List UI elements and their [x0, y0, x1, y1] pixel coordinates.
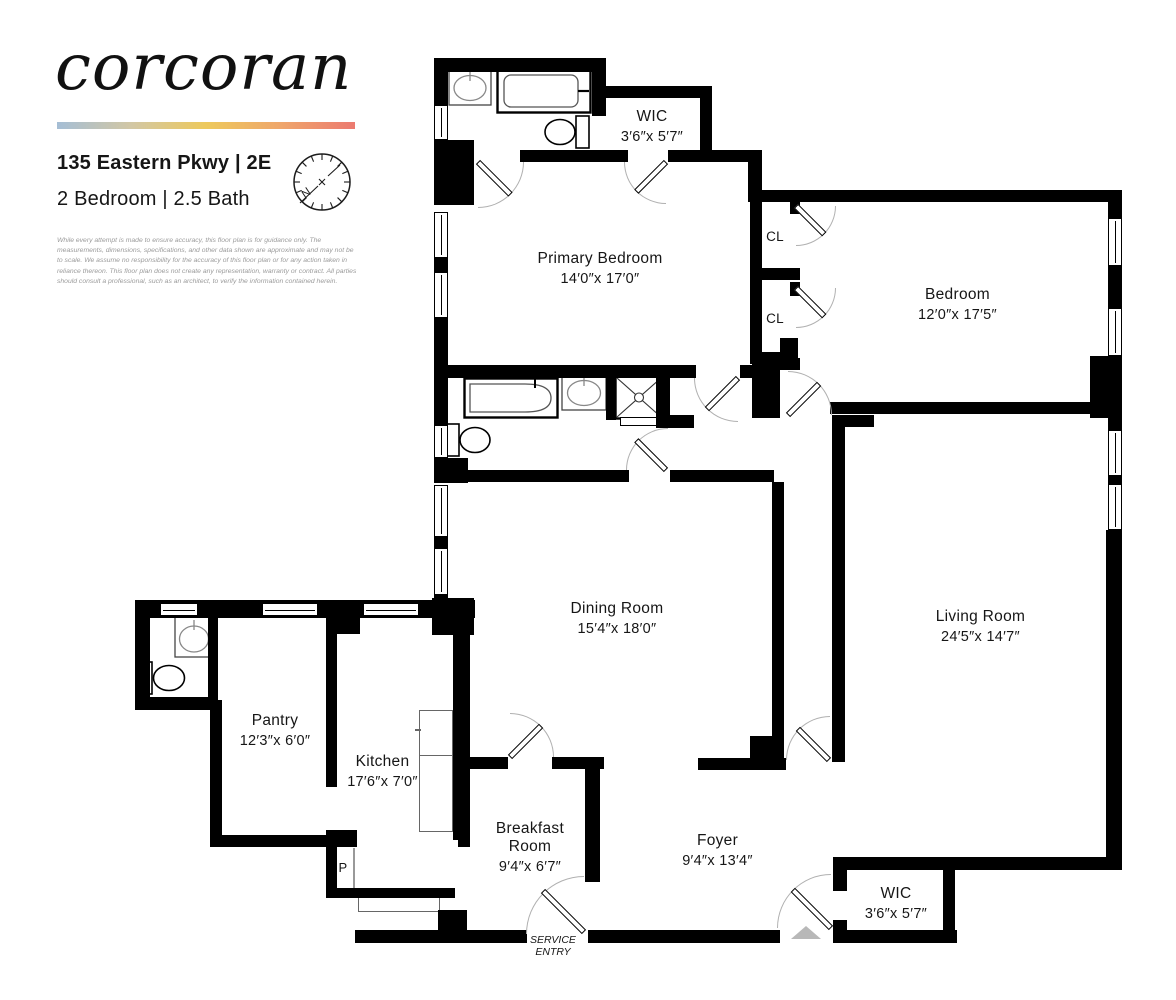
wall: [762, 268, 800, 280]
wall: [830, 402, 1092, 414]
room-label-kitchen: Kitchen17′6″x 7′0″: [300, 753, 465, 790]
window-icon: [1108, 430, 1122, 476]
wall: [520, 150, 600, 162]
wall: [840, 857, 1122, 870]
wall: [210, 835, 340, 847]
corcoran-logo: corcoran: [55, 36, 352, 100]
brand-gradient-bar: [57, 122, 355, 129]
wall: [434, 58, 606, 72]
wall: [772, 482, 784, 768]
window-icon: [434, 485, 448, 537]
wall: [1108, 190, 1122, 218]
wall: [434, 58, 448, 108]
window-icon: [434, 272, 448, 318]
window-icon: [262, 603, 318, 616]
wall: [832, 427, 845, 762]
wall: [1108, 418, 1122, 430]
wall: [445, 470, 629, 482]
sink-icon: [448, 68, 492, 111]
wall: [135, 600, 150, 710]
wall: [434, 537, 448, 548]
room-label-dining-room: Dining Room15′4″x 18′0″: [482, 600, 752, 637]
wall: [750, 162, 762, 354]
bathtub-icon: [496, 68, 592, 119]
wall: [588, 930, 780, 943]
listing-address: 135 Eastern Pkwy | 2E: [57, 152, 271, 175]
room-label-primary-bedroom: Primary Bedroom14′0″x 17′0″: [460, 250, 740, 287]
wall: [135, 697, 218, 710]
wall: [832, 415, 874, 427]
wall: [458, 830, 470, 847]
window-icon: [434, 425, 448, 458]
window-icon: [1108, 218, 1122, 266]
window-icon: [434, 212, 448, 258]
room-label-living-room: Living Room24′5″x 14′7″: [848, 608, 1113, 645]
sink-icon: [561, 373, 607, 416]
wall: [1106, 530, 1122, 870]
wall: [326, 888, 357, 898]
window-icon: [1108, 308, 1122, 356]
wall: [434, 140, 474, 205]
wall: [355, 888, 455, 898]
wall: [664, 415, 694, 428]
window-icon: [434, 548, 448, 595]
wall: [326, 618, 360, 634]
wall: [470, 757, 508, 769]
wall: [598, 150, 628, 162]
wall: [748, 190, 1122, 202]
wall: [845, 930, 957, 943]
room-label-foyer: Foyer9′4″x 13′4″: [640, 832, 795, 869]
disclaimer-text: While every attempt is made to ensure ac…: [57, 236, 361, 287]
wall: [750, 736, 772, 760]
wall: [594, 86, 712, 98]
window-icon: [434, 105, 448, 140]
wall: [434, 318, 448, 425]
window-icon: [160, 603, 198, 616]
wall: [698, 758, 786, 770]
compass-icon: N: [288, 148, 356, 221]
wall: [210, 700, 222, 847]
shower-entry: [620, 417, 658, 426]
toilet-icon: [444, 422, 492, 463]
floorplan-page: corcoran 135 Eastern Pkwy | 2E 2 Bedroom…: [0, 0, 1176, 1000]
wall: [780, 358, 800, 370]
wall: [1108, 476, 1122, 484]
room-label-wic-bottom: WIC3′6″x 5′7″: [844, 885, 948, 922]
wall: [1108, 266, 1122, 308]
breakfast-counter: [358, 896, 440, 912]
toilet-icon: [543, 114, 591, 155]
room-label-breakfast-room: Breakfast Room9′4″x 6′7″: [480, 820, 580, 875]
wall: [355, 930, 527, 943]
wall: [740, 365, 762, 378]
window-icon: [1108, 484, 1122, 530]
listing-unit-info: 2 Bedroom | 2.5 Bath: [57, 188, 250, 211]
bathtub-icon: [463, 377, 559, 424]
wall: [606, 378, 616, 420]
wall: [670, 470, 774, 482]
wall: [752, 352, 780, 418]
wall: [585, 757, 600, 882]
wall: [208, 618, 218, 698]
wall: [434, 258, 448, 272]
wall: [943, 870, 955, 943]
wall: [326, 634, 337, 787]
room-label-bedroom: Bedroom12′0″x 17′5″: [820, 286, 1095, 323]
wall: [453, 600, 470, 840]
wall: [1090, 356, 1122, 418]
window-icon: [363, 603, 419, 616]
room-label-wic-top: WIC3′6″x 5′7″: [596, 108, 708, 145]
wall: [833, 857, 847, 891]
